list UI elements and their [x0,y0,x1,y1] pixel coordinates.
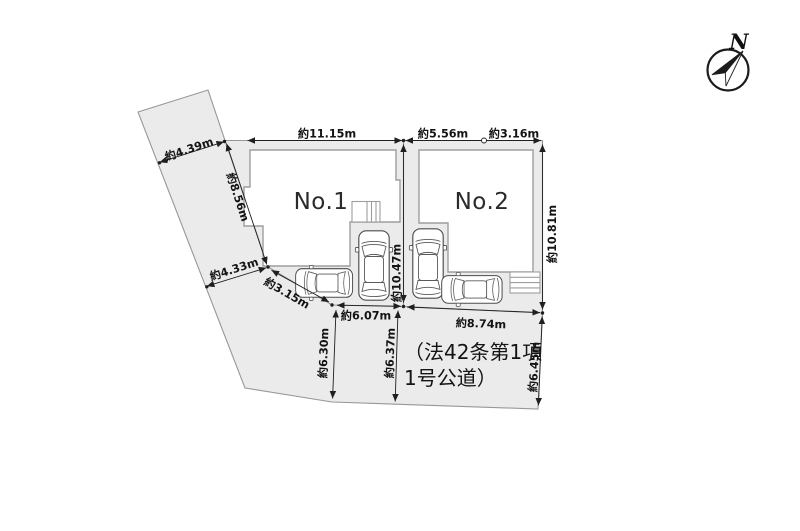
car-icon-lot1-vertical [355,231,392,300]
site-plan-page: 約11.15m 約5.56m 約3.16m 約4.39m 約8.56m 約4.3… [0,0,800,531]
compass-north-label: N [728,29,749,54]
dim-label-lot1-top: 約11.15m [298,127,356,141]
lot1-number-label: No.1 [294,189,349,215]
dim-label-lot-divider: 約10.47m [390,244,404,302]
car-icon-lot2-horizontal [442,273,502,307]
site-plan-drawing: 約11.15m 約5.56m 約3.16m 約4.39m 約8.56m 約4.3… [0,0,800,531]
dim-label-lot2-east-edge: 約10.81m [545,205,559,263]
dim-label-lot1-frontage: 約6.07m [341,309,391,323]
road-designation-line2: 1号公道） [404,366,497,390]
north-compass: N [708,29,750,91]
dim-label-lot2-top-left: 約5.56m [418,127,468,141]
dim-label-lot2-top-right: 約3.16m [489,127,539,141]
dim-label-lot2-frontage: 約8.74m [455,316,506,332]
lot2-number-label: No.2 [455,189,510,215]
dim-label-road-width-west: 約6.30m [316,328,332,379]
car-icon-lot2-vertical [409,229,446,298]
dim-label-road-width-center: 約6.37m [382,328,398,379]
road-designation-line1: （法42条第1項 [404,340,542,364]
